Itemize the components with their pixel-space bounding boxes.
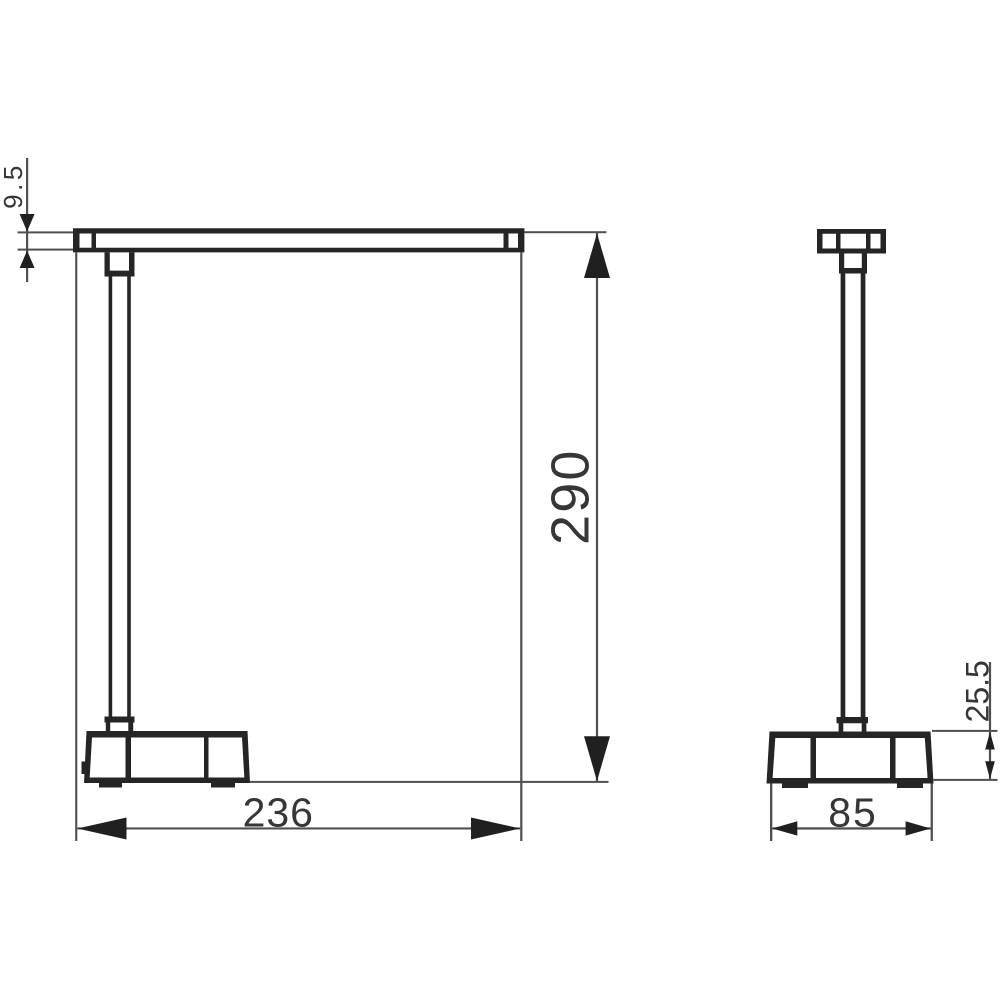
- svg-text:9.5: 9.5: [0, 162, 28, 209]
- svg-text:25.5: 25.5: [959, 660, 995, 722]
- svg-text:290: 290: [541, 448, 601, 545]
- svg-text:85: 85: [828, 789, 878, 835]
- svg-text:236: 236: [243, 789, 314, 835]
